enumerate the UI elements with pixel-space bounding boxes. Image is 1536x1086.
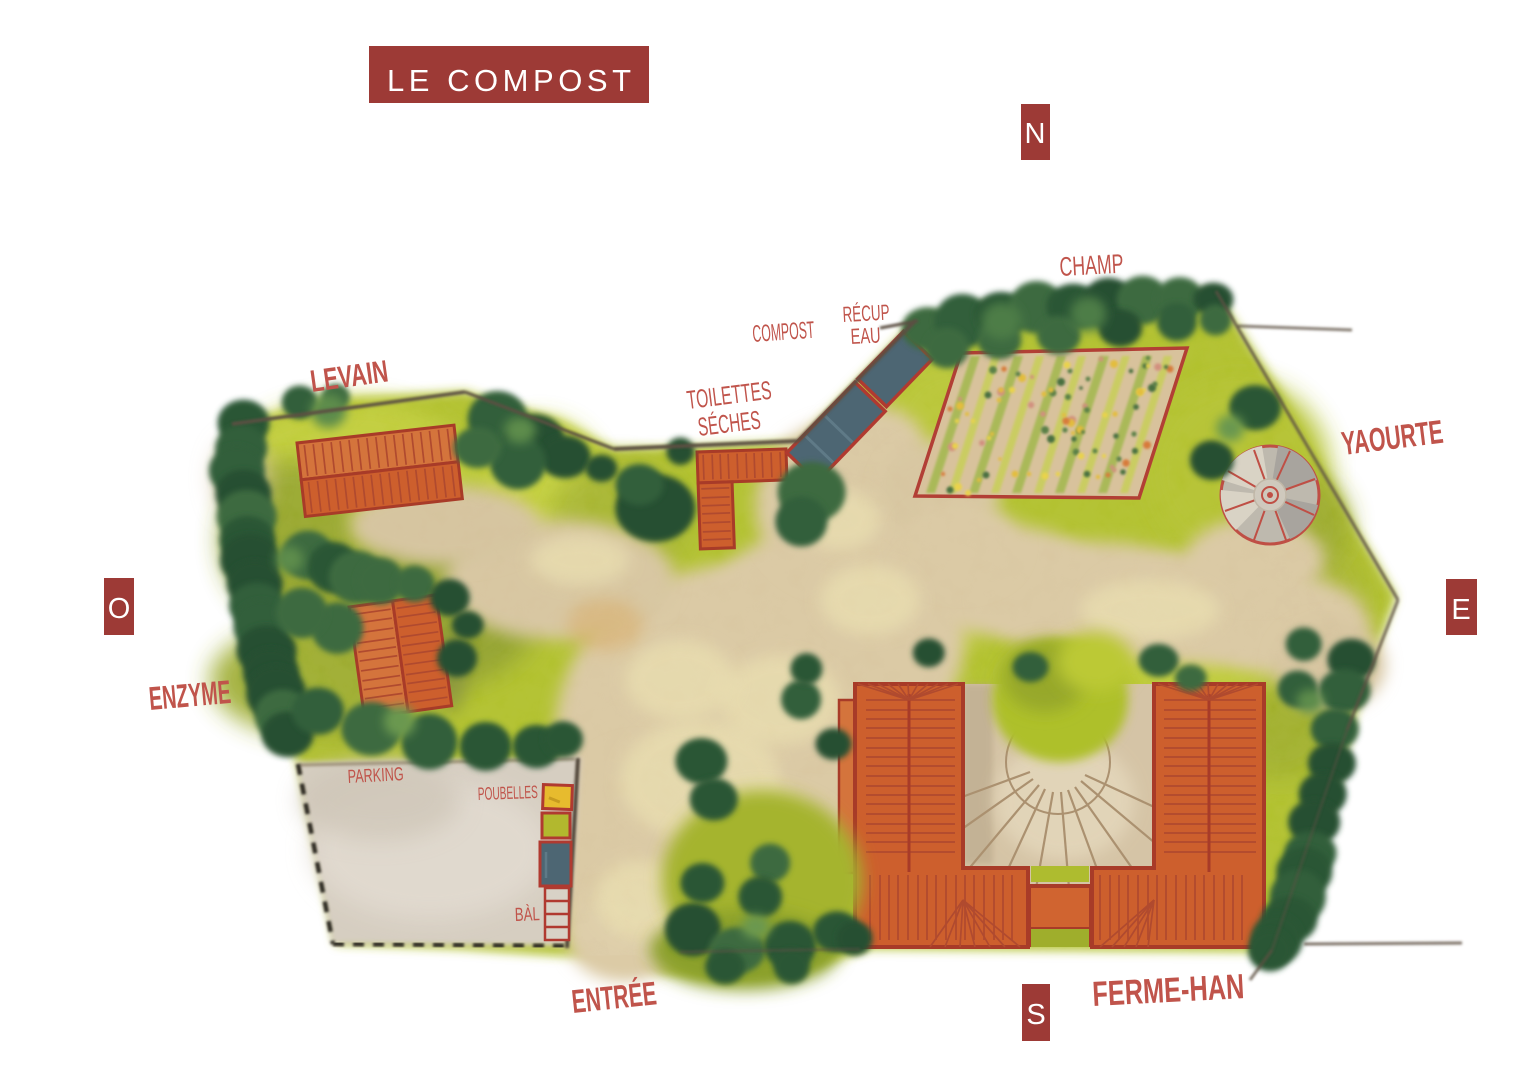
svg-text:LEVAIN: LEVAIN	[308, 353, 390, 399]
svg-text:CHAMP: CHAMP	[1059, 249, 1124, 282]
svg-text:PARKING: PARKING	[347, 764, 404, 788]
svg-text:O: O	[108, 593, 131, 625]
svg-text:COMPOST: COMPOST	[752, 317, 816, 348]
svg-text:SÉCHES: SÉCHES	[696, 405, 762, 442]
svg-text:E: E	[1451, 594, 1470, 626]
svg-text:FERME-HAN: FERME-HAN	[1091, 967, 1245, 1014]
svg-text:S: S	[1026, 999, 1045, 1031]
svg-text:POUBELLES: POUBELLES	[477, 782, 538, 804]
svg-text:YAOURTE: YAOURTE	[1339, 413, 1445, 462]
svg-text:ENTRÉE: ENTRÉE	[570, 974, 658, 1020]
svg-text:ENZYME: ENZYME	[147, 673, 232, 717]
svg-text:LE COMPOST: LE COMPOST	[387, 63, 631, 98]
svg-text:BÀL: BÀL	[514, 904, 540, 926]
svg-text:EAU: EAU	[850, 322, 881, 349]
svg-text:N: N	[1025, 118, 1046, 150]
